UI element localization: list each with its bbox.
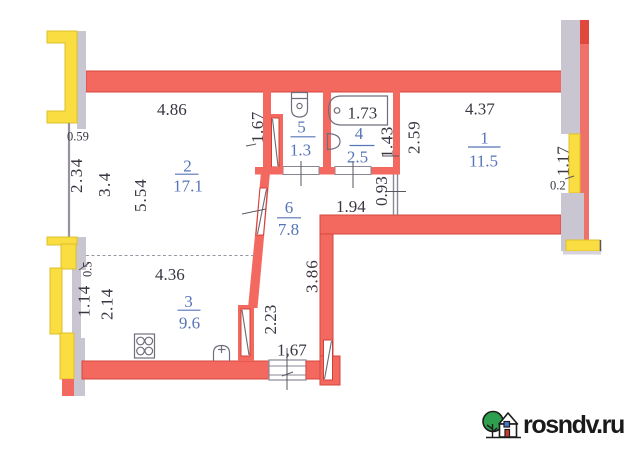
svg-text:5.54: 5.54 bbox=[131, 178, 150, 212]
svg-text:1.17: 1.17 bbox=[554, 146, 573, 176]
svg-text:1.73: 1.73 bbox=[348, 104, 378, 123]
svg-text:5: 5 bbox=[297, 118, 306, 137]
svg-text:0.59: 0.59 bbox=[67, 130, 89, 144]
svg-text:6: 6 bbox=[285, 198, 294, 217]
svg-text:1.43: 1.43 bbox=[378, 126, 397, 158]
svg-text:2.34: 2.34 bbox=[67, 157, 86, 193]
svg-text:1.3: 1.3 bbox=[290, 141, 311, 160]
svg-text:1.14: 1.14 bbox=[75, 285, 94, 317]
svg-text:4: 4 bbox=[355, 124, 364, 143]
svg-text:3: 3 bbox=[184, 292, 193, 311]
svg-text:11.5: 11.5 bbox=[469, 152, 498, 171]
svg-text:2.23: 2.23 bbox=[261, 305, 280, 335]
svg-text:2.5: 2.5 bbox=[347, 148, 368, 167]
svg-text:3.86: 3.86 bbox=[303, 259, 322, 293]
svg-text:0.5: 0.5 bbox=[81, 261, 95, 277]
svg-text:1,67: 1,67 bbox=[277, 341, 307, 360]
svg-text:0.2: 0.2 bbox=[550, 179, 566, 193]
svg-text:4.86: 4.86 bbox=[157, 100, 187, 119]
svg-text:2.14: 2.14 bbox=[98, 288, 117, 320]
svg-text:1.67: 1.67 bbox=[248, 111, 267, 143]
svg-text:9.6: 9.6 bbox=[179, 314, 200, 333]
svg-text:4.36: 4.36 bbox=[155, 265, 185, 284]
svg-text:1: 1 bbox=[480, 129, 489, 148]
svg-text:17.1: 17.1 bbox=[173, 177, 203, 196]
svg-text:3.4: 3.4 bbox=[95, 171, 114, 197]
svg-text:7.8: 7.8 bbox=[278, 220, 299, 239]
svg-text:2: 2 bbox=[183, 157, 192, 176]
svg-text:4.37: 4.37 bbox=[465, 100, 495, 119]
svg-text:0.93: 0.93 bbox=[372, 176, 391, 206]
svg-text:rosndv.ru: rosndv.ru bbox=[523, 411, 624, 439]
svg-text:1.94: 1.94 bbox=[336, 197, 366, 216]
svg-text:2.59: 2.59 bbox=[405, 120, 424, 154]
